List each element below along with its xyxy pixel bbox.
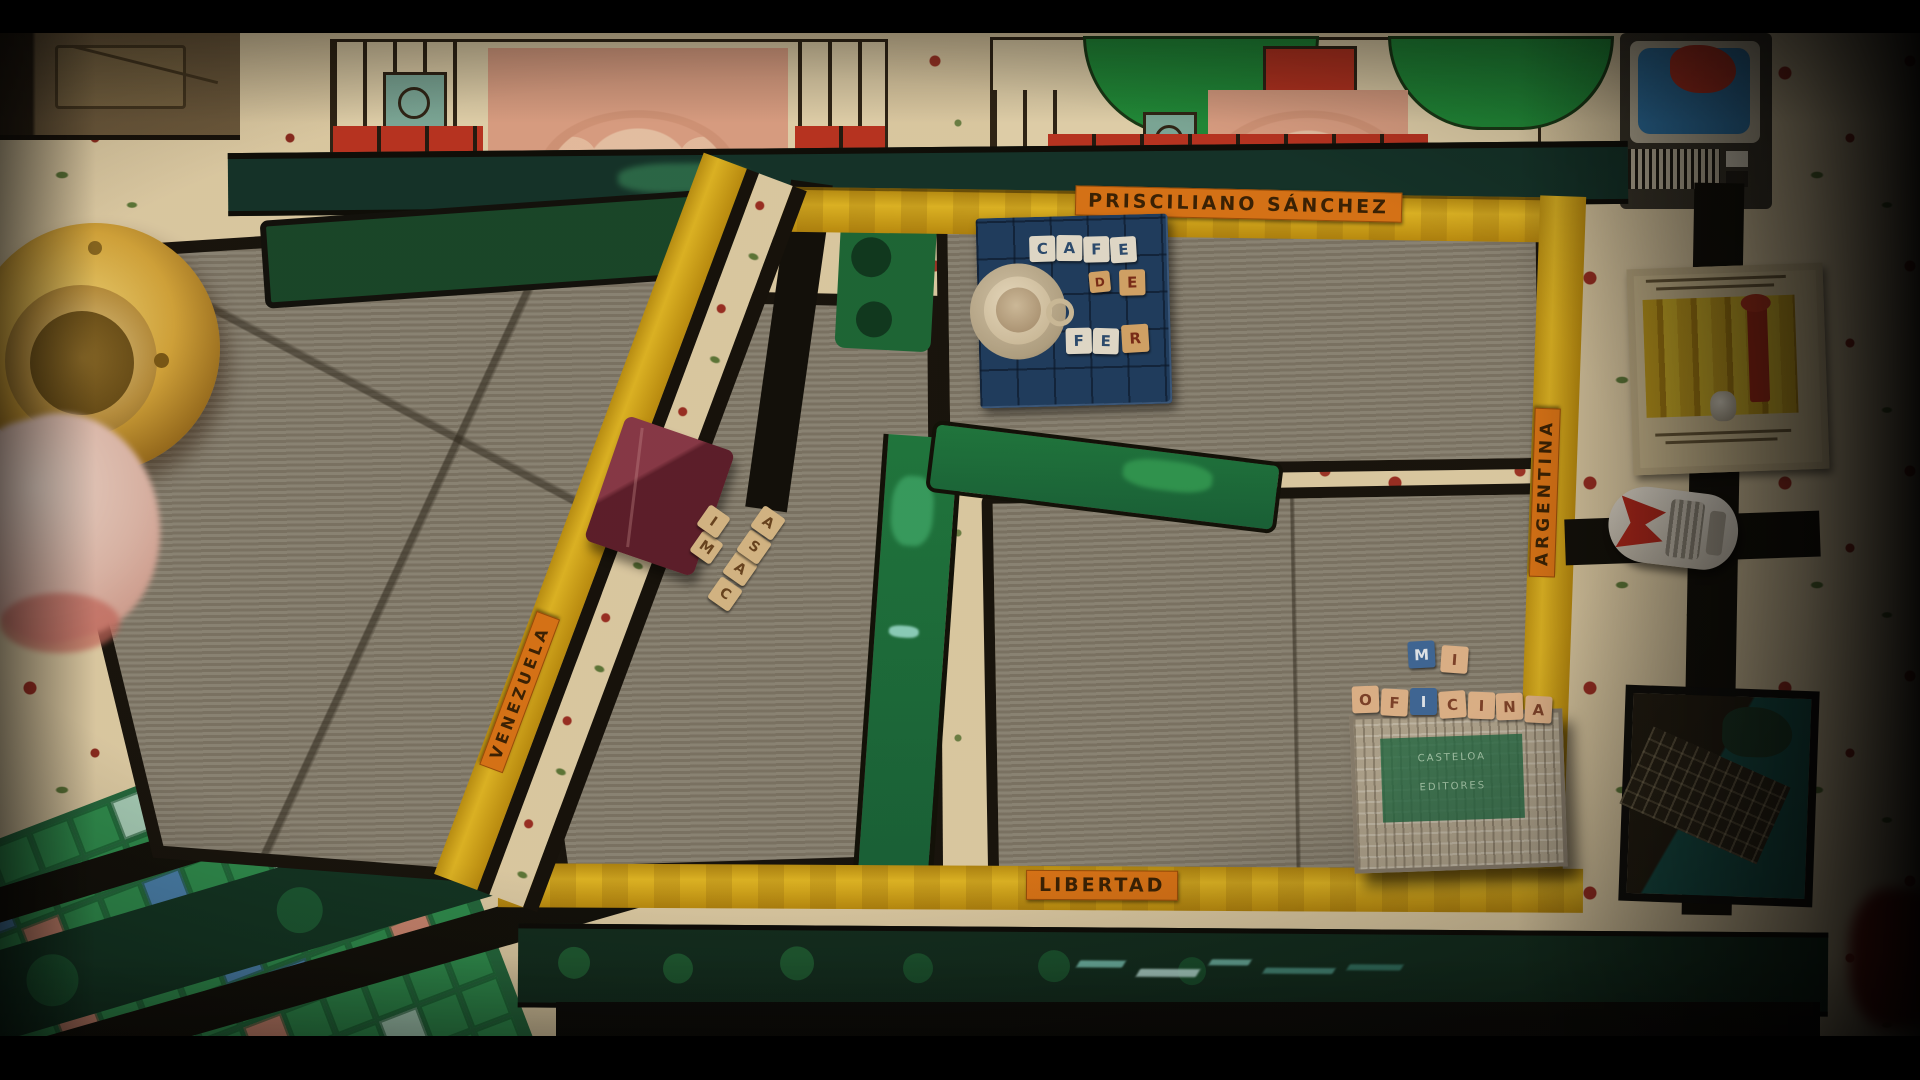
tile-letter: E bbox=[1092, 328, 1119, 355]
teacup bbox=[969, 262, 1072, 365]
tile-letter: F bbox=[1380, 688, 1408, 716]
red-object-edge bbox=[1850, 888, 1920, 1028]
tv-knob bbox=[1726, 151, 1748, 167]
facade-figure bbox=[1710, 391, 1737, 422]
sconce-screw bbox=[88, 241, 102, 255]
tile-letter: N bbox=[1496, 693, 1524, 721]
wallpaper-background: PRISCILIANO SÁNCHEZ ARGENTINA LIBERTAD V… bbox=[0, 33, 1920, 1036]
sconce-screw bbox=[154, 353, 169, 368]
office-sign-line2: EDITORES bbox=[1382, 779, 1524, 795]
tile-letter: C bbox=[1029, 235, 1056, 262]
office-sign-line1: CASTELOA bbox=[1381, 750, 1523, 766]
sketch-furniture bbox=[55, 45, 186, 109]
tile-letter: C bbox=[1438, 690, 1467, 719]
letterbox-bottom bbox=[0, 1036, 1920, 1080]
teacup-handle bbox=[1046, 298, 1075, 327]
facade-postcard bbox=[1626, 263, 1829, 476]
scrabble-rack: C A F E D E F E R bbox=[976, 214, 1173, 409]
wall-sconce-lamp bbox=[0, 213, 250, 633]
tv-screen bbox=[1630, 41, 1760, 143]
tile-letter: D bbox=[1088, 270, 1111, 293]
letterbox-top bbox=[0, 0, 1920, 33]
tile-letter: A bbox=[1524, 695, 1552, 723]
plaza-card-left bbox=[330, 39, 888, 165]
tile-letter: I bbox=[1468, 692, 1496, 720]
tape-black-bottom bbox=[556, 1002, 1820, 1036]
tile-letter: F bbox=[1083, 236, 1110, 263]
movie-frame: PRISCILIANO SÁNCHEZ ARGENTINA LIBERTAD V… bbox=[0, 0, 1920, 1080]
canal-glints bbox=[1078, 954, 1418, 986]
tile-letter: I bbox=[1410, 688, 1437, 715]
office-building: CASTELOA EDITORES bbox=[1349, 708, 1567, 873]
toy-car bbox=[1604, 482, 1743, 577]
building-postcard bbox=[1618, 685, 1819, 908]
tile-letter: O bbox=[1352, 686, 1380, 714]
tile-letter: I bbox=[1440, 645, 1469, 674]
car-windshield bbox=[1665, 499, 1706, 561]
fountain-motif bbox=[488, 48, 788, 162]
tile-letter: E bbox=[1119, 269, 1146, 296]
red-plaque bbox=[1263, 46, 1357, 94]
tree-semicircle bbox=[1388, 36, 1614, 130]
office-sign: CASTELOA EDITORES bbox=[1380, 734, 1525, 823]
tile-letter: A bbox=[1056, 235, 1082, 261]
tile-letter: R bbox=[1121, 324, 1150, 354]
tile-letter: E bbox=[1110, 236, 1138, 264]
tile-letter: M bbox=[1407, 640, 1435, 668]
tv-screen-figure bbox=[1670, 45, 1736, 93]
facade-red-column bbox=[1747, 302, 1770, 403]
street-label-argentina: ARGENTINA bbox=[1529, 407, 1561, 577]
sepia-sketch-card bbox=[0, 33, 240, 140]
street-label-libertad: LIBERTAD bbox=[1026, 870, 1179, 901]
